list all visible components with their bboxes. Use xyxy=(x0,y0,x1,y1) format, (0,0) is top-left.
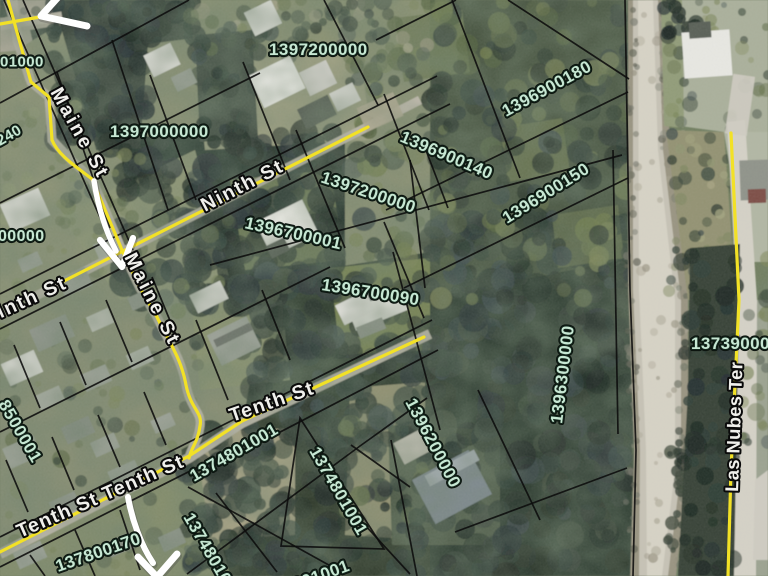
svg-text:1397000000: 1397000000 xyxy=(110,122,209,141)
svg-text:01000: 01000 xyxy=(0,54,44,71)
svg-text:1373900000: 1373900000 xyxy=(691,334,768,353)
svg-text:1397200000: 1397200000 xyxy=(269,40,368,59)
svg-text:00000: 00000 xyxy=(0,228,45,245)
